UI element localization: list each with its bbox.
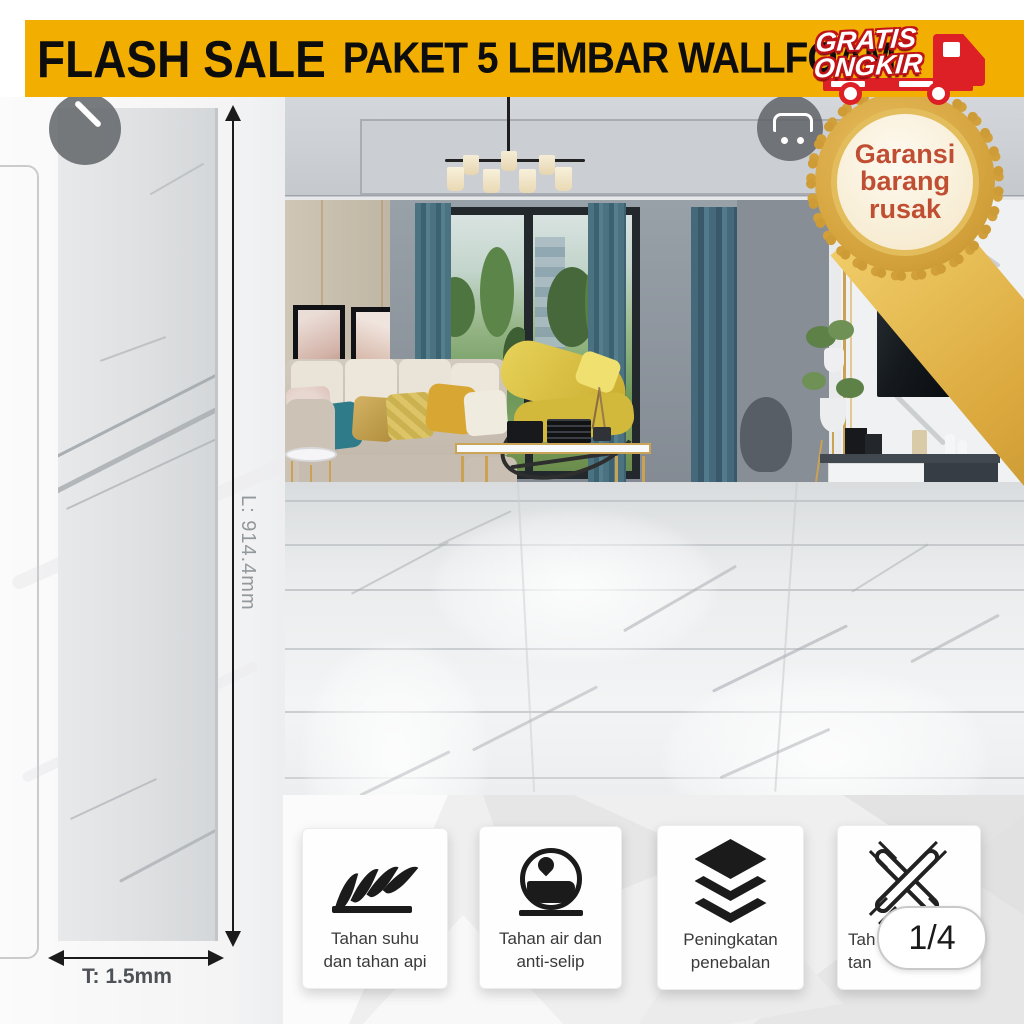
feature-card-water: Tahan air dan anti-selip [479,826,622,989]
wallfoam-plank-sample [58,108,218,941]
thickness-arrow-left [48,950,64,966]
layers-icon [695,839,767,925]
feature-label: Tahan suhu [331,929,419,948]
length-arrow-bottom [225,931,241,947]
marble-floor [285,482,1024,795]
feature-label: Tahan air dan [499,929,602,948]
water-drop-icon [511,848,591,918]
image-pager-indicator: 1/4 [877,906,987,970]
product-image-viewer: L: 914.4mm T: 1.5mm [0,0,1024,1024]
ongkir-text: ONGKIR [813,51,923,82]
product-sample-panel: L: 914.4mm T: 1.5mm [0,97,285,1024]
pager-text: 1/4 [908,919,955,958]
length-label: L: 914.4mm [236,495,259,611]
free-shipping-badge: GRATIS ONGKIR [815,26,985,98]
feature-card-thickness: Peningkatan penebalan [657,825,804,990]
thickness-label: T: 1.5mm [82,965,172,989]
length-arrow-top [225,105,241,121]
back-button[interactable] [49,93,121,165]
warranty-line3: rusak [869,196,941,224]
length-dimension-line [232,118,234,938]
thickness-arrow-right [208,950,224,966]
warranty-line1: Garansi [855,141,956,169]
back-icon [74,100,102,128]
feature-card-heat: Tahan suhu dan tahan api [302,828,448,989]
chandelier [435,97,595,207]
warranty-line2: barang [860,168,950,196]
partial-plank-outline [0,165,39,959]
promo-banner: FLASH SALE PAKET 5 LEMBAR WALLFOAM GRATI… [25,20,1024,97]
warranty-seal: Garansi barang rusak [815,92,995,272]
thickness-dimension-line [62,957,210,959]
feature-label: Tah [848,930,875,949]
fire-icon [332,857,418,913]
feature-label: Peningkatan [683,930,778,949]
share-icon [773,113,813,132]
papasan-chair [740,397,792,472]
flash-sale-title: FLASH SALE [37,28,326,88]
